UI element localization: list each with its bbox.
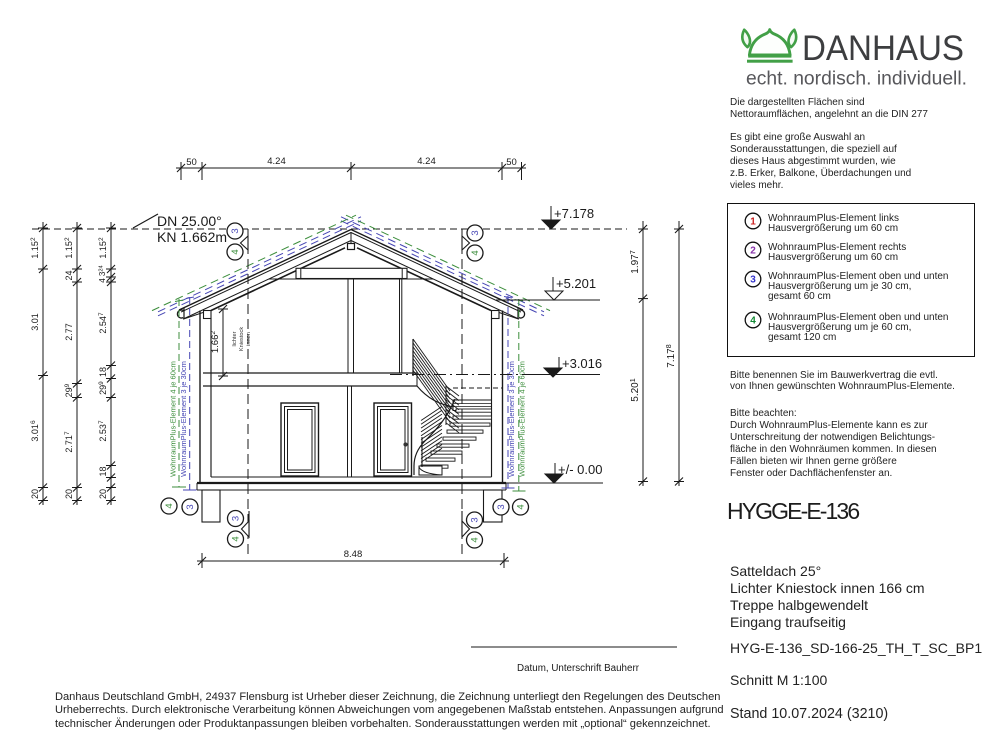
svg-text:4: 4 — [164, 503, 175, 508]
svg-text:50: 50 — [506, 157, 517, 168]
svg-text:+7.178: +7.178 — [554, 206, 594, 221]
svg-text:4.24: 4.24 — [267, 156, 286, 167]
svg-text:20: 20 — [30, 489, 40, 499]
svg-text:WohnraumPlus-Element 3 je 30cm: WohnraumPlus-Element 3 je 30cm — [507, 361, 516, 477]
svg-text:+/- 0.00: +/- 0.00 — [558, 462, 602, 477]
svg-text:4: 4 — [470, 250, 481, 255]
svg-text:1.662: 1.662 — [210, 331, 221, 354]
svg-text:3: 3 — [470, 230, 481, 235]
svg-text:2.537: 2.537 — [98, 420, 108, 442]
svg-text:4: 4 — [231, 536, 242, 541]
svg-text:2: 2 — [750, 245, 756, 256]
svg-text:1.977: 1.977 — [628, 250, 641, 273]
svg-text:2.547: 2.547 — [98, 312, 108, 334]
svg-text:1.152: 1.152 — [30, 237, 40, 259]
svg-text:3: 3 — [231, 516, 242, 521]
svg-text:DN 25.00°: DN 25.00° — [157, 213, 222, 229]
svg-text:4 324: 4 324 — [98, 264, 107, 282]
svg-text:1.152: 1.152 — [98, 237, 108, 259]
svg-text:KN 1.662m: KN 1.662m — [157, 229, 227, 245]
svg-text:2.717: 2.717 — [64, 431, 74, 453]
svg-text:4: 4 — [230, 249, 241, 254]
svg-text:18: 18 — [98, 466, 108, 476]
svg-text:5.201: 5.201 — [628, 378, 641, 401]
svg-text:3: 3 — [470, 517, 481, 522]
svg-text:lichter: lichter — [232, 331, 238, 346]
svg-text:WohnraumPlus-Element 3 je 30cm: WohnraumPlus-Element 3 je 30cm — [179, 361, 188, 477]
svg-text:8.48: 8.48 — [344, 549, 363, 560]
svg-text:299: 299 — [98, 381, 108, 395]
svg-text:4: 4 — [470, 537, 481, 542]
svg-text:3.01: 3.01 — [30, 313, 40, 331]
svg-text:innen: innen — [246, 332, 252, 346]
svg-text:20: 20 — [64, 489, 74, 499]
svg-text:2.77: 2.77 — [64, 323, 74, 341]
svg-text:DANHAUS: DANHAUS — [802, 28, 964, 68]
svg-text:Datum, Unterschrift Bauherr: Datum, Unterschrift Bauherr — [517, 663, 640, 674]
svg-text:4: 4 — [516, 504, 527, 509]
svg-text:3.016: 3.016 — [30, 420, 40, 442]
svg-text:1.152: 1.152 — [64, 237, 74, 259]
svg-text:WohnraumPlus-Element 4 je 60cm: WohnraumPlus-Element 4 je 60cm — [518, 361, 527, 477]
svg-text:1: 1 — [750, 216, 756, 227]
svg-text:18: 18 — [98, 367, 108, 377]
svg-text:3: 3 — [750, 275, 756, 286]
svg-text:3: 3 — [185, 504, 196, 509]
svg-text:24: 24 — [64, 270, 74, 280]
svg-text:+5.201: +5.201 — [556, 276, 596, 291]
svg-text:WohnraumPlus-Element 4 je 60cm: WohnraumPlus-Element 4 je 60cm — [169, 361, 178, 477]
svg-text:299: 299 — [64, 383, 74, 397]
svg-text:4: 4 — [750, 316, 756, 327]
svg-text:3: 3 — [230, 228, 241, 233]
svg-text:echt. nordisch. individuell.: echt. nordisch. individuell. — [746, 68, 967, 90]
svg-text:+3.016: +3.016 — [562, 356, 602, 371]
svg-text:7.178: 7.178 — [664, 344, 677, 367]
svg-text:4.24: 4.24 — [417, 156, 436, 167]
svg-text:Kniestock: Kniestock — [239, 327, 245, 351]
svg-text:3: 3 — [496, 504, 507, 509]
svg-text:50: 50 — [186, 157, 197, 168]
svg-text:20: 20 — [98, 489, 108, 499]
